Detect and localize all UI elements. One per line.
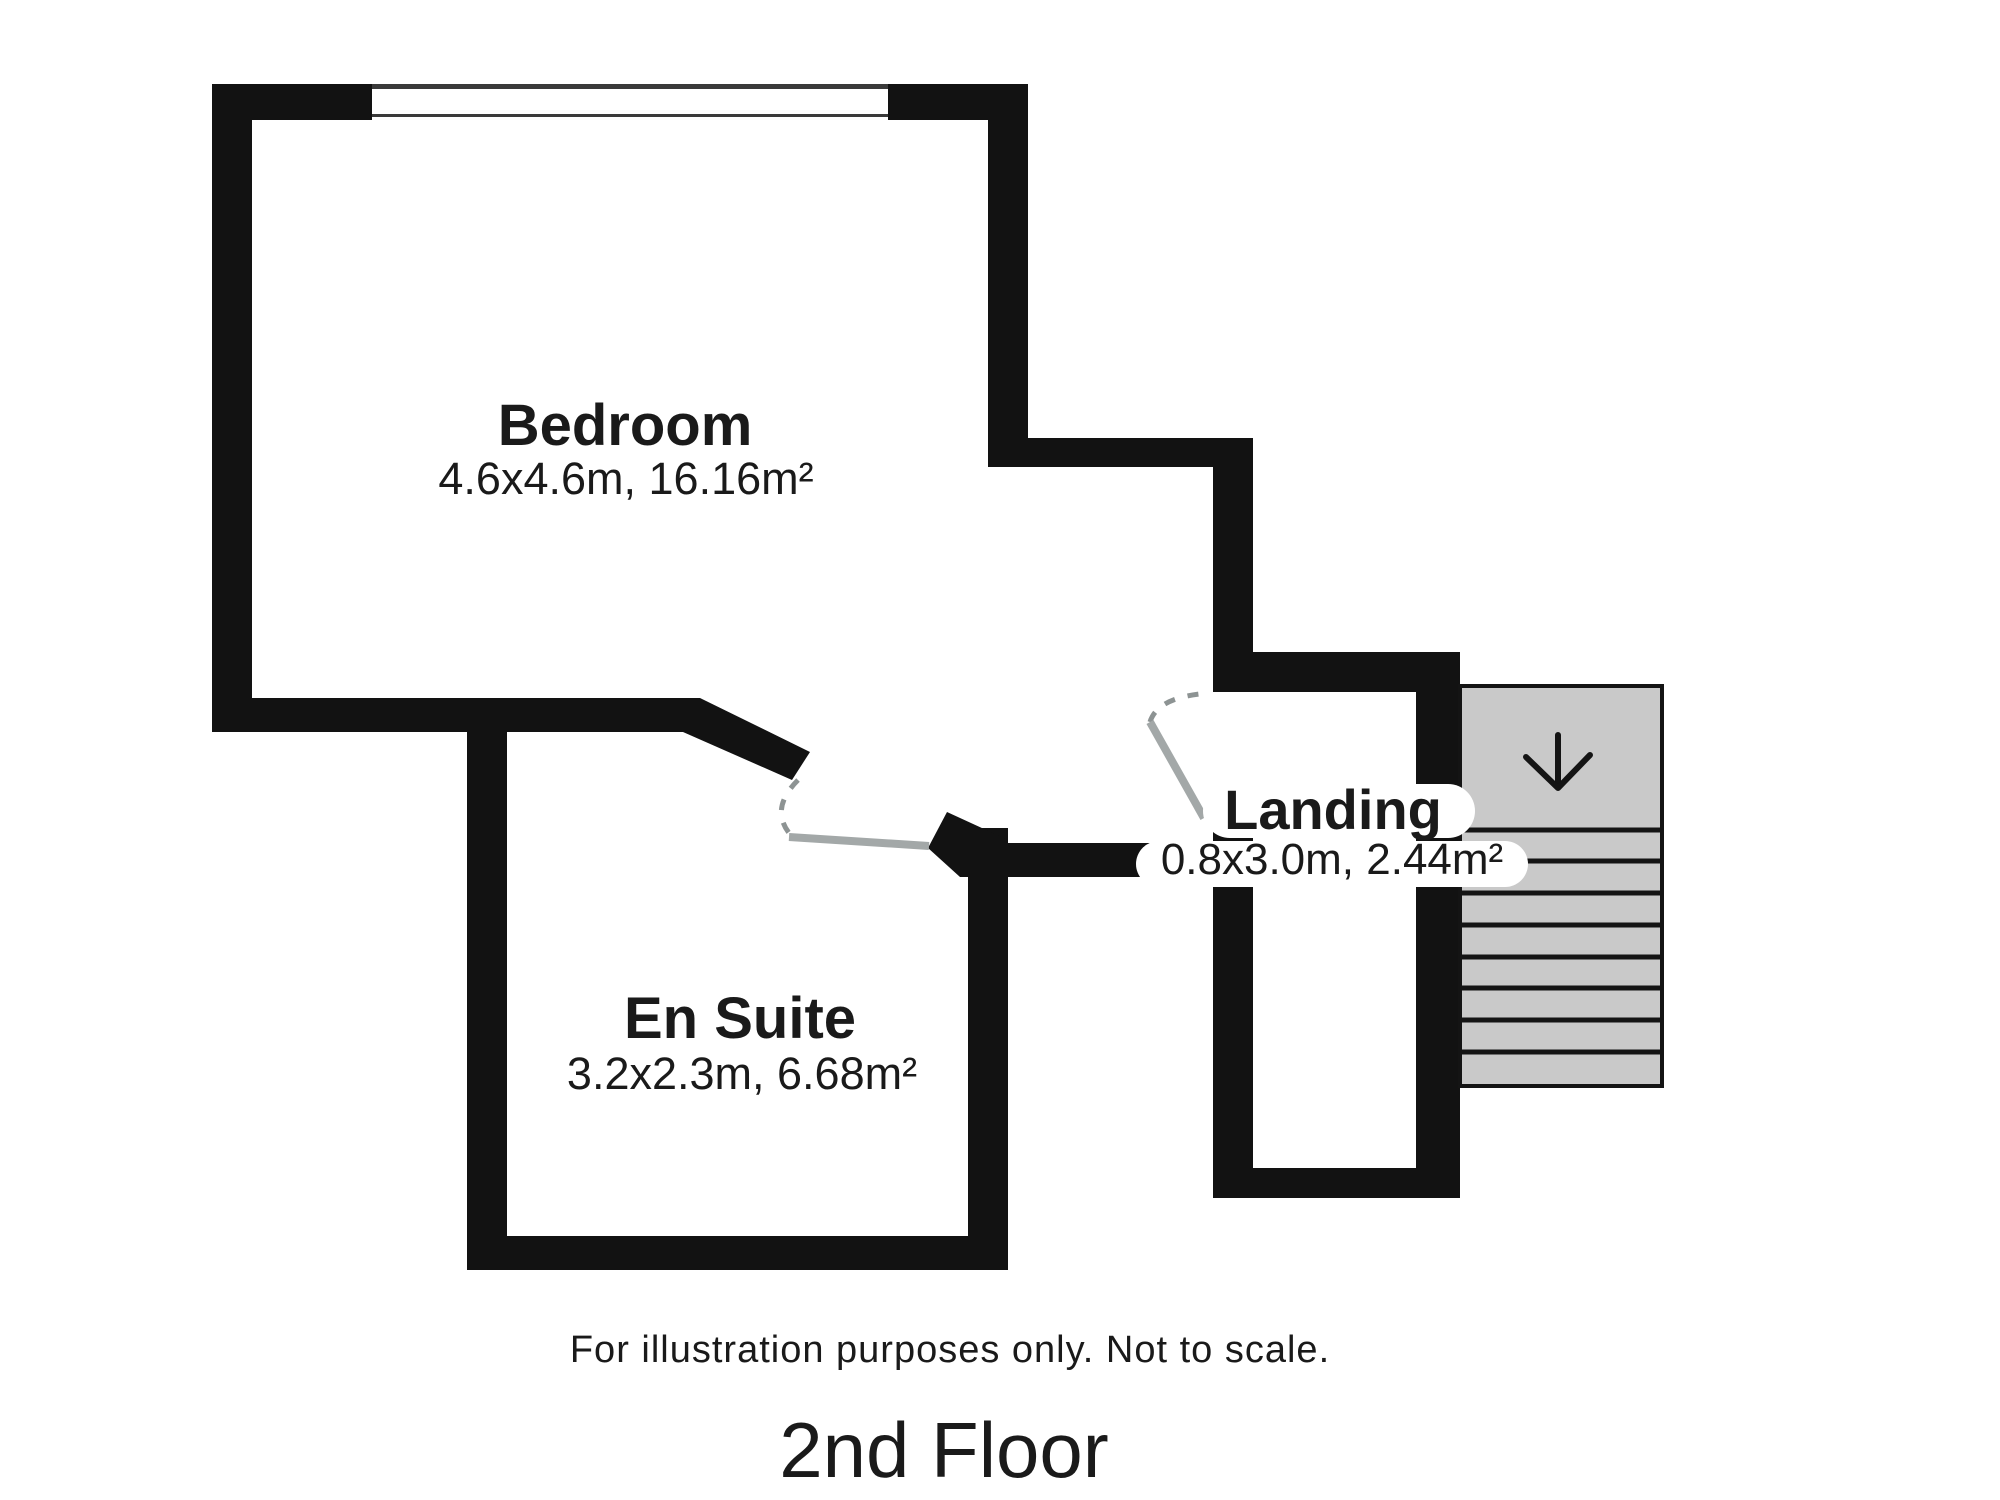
bedroom-right-wall <box>988 84 1028 467</box>
bedroom-left-wall <box>212 84 252 732</box>
bedroom-dimensions: 4.6x4.6m, 16.16m² <box>438 453 813 504</box>
ensuite-name: En Suite <box>624 986 856 1051</box>
window-inner-frame <box>372 114 888 117</box>
landing-name: Landing <box>1224 778 1442 841</box>
bedroom-top-wall-left <box>212 84 372 120</box>
bedroom-window <box>372 84 888 120</box>
ensuite-right-wall <box>968 828 1008 1270</box>
disclaimer-text: For illustration purposes only. Not to s… <box>570 1329 1330 1371</box>
ensuite-bottom-wall <box>467 1236 1008 1270</box>
landing-right-wall <box>1416 652 1460 1198</box>
ensuite-left-wall <box>467 732 507 1270</box>
ensuite-dimensions: 3.2x2.3m, 6.68m² <box>567 1048 917 1099</box>
floor-plan: Bedroom 4.6x4.6m, 16.16m² En Suite 3.2x2… <box>0 0 2000 1500</box>
bedroom-bottom-wall <box>212 698 700 732</box>
landing-left-wall-upper <box>1213 438 1253 692</box>
window-outer-frame <box>372 84 888 89</box>
bedroom-name: Bedroom <box>498 393 753 458</box>
landing-dimensions: 0.8x3.0m, 2.44m² <box>1161 835 1503 884</box>
floor-title: 2nd Floor <box>779 1406 1109 1494</box>
